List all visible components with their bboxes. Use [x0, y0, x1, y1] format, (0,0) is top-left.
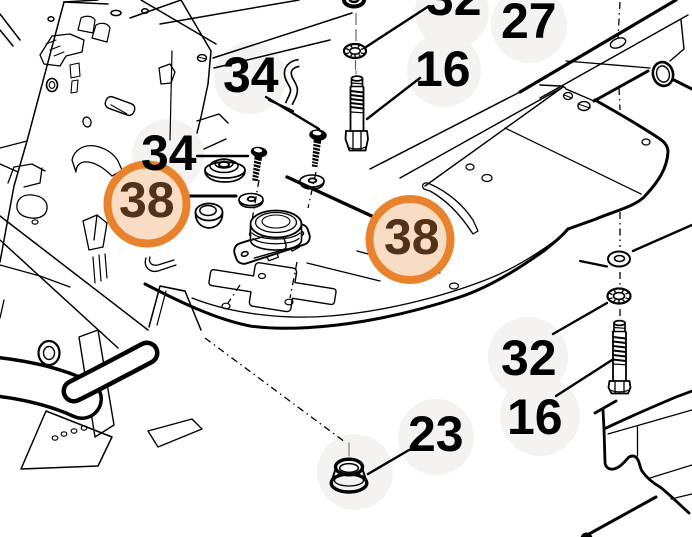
svg-text:32: 32	[501, 330, 557, 386]
svg-text:38: 38	[384, 209, 440, 265]
svg-text:27: 27	[501, 0, 557, 49]
svg-text:38: 38	[119, 172, 175, 228]
svg-text:16: 16	[415, 41, 471, 97]
svg-text:16: 16	[507, 389, 563, 445]
svg-text:23: 23	[408, 406, 464, 462]
svg-text:32: 32	[426, 0, 482, 26]
svg-text:34: 34	[223, 47, 279, 103]
